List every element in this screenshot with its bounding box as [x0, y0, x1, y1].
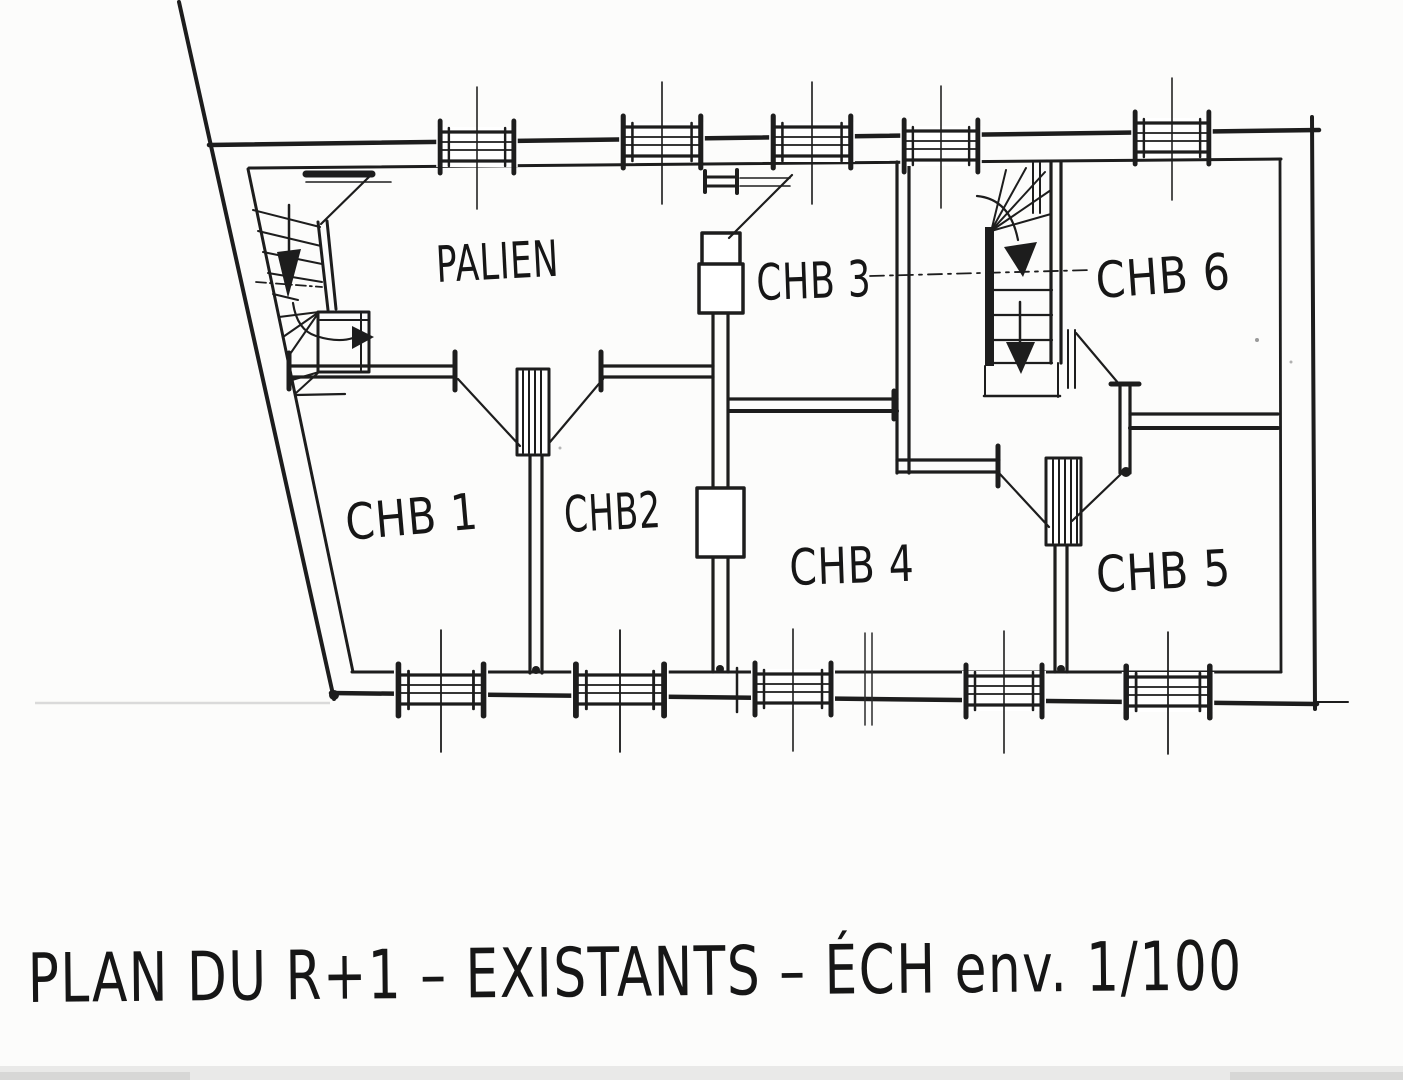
flue-chb4-chb5 [1046, 458, 1081, 545]
floor-plan-drawing: PALIEN CHB 1 CHB2 CHB 3 CHB 4 CHB 5 CHB … [0, 0, 1403, 1080]
window [436, 87, 517, 209]
room-label-chb1: CHB 1 [343, 483, 481, 552]
left-wall-inner [248, 169, 353, 672]
room-label-palier: PALIEN [435, 230, 561, 294]
plan-title: PLAN DU R+1 – EXISTANTS – ÉCH env. 1/100 [27, 926, 1243, 1019]
window [1122, 632, 1214, 754]
window [962, 631, 1046, 753]
flue-central-b [699, 264, 743, 313]
door-chb1 [458, 379, 520, 446]
corner-blob [329, 690, 339, 700]
door-chb6 [1068, 330, 1119, 388]
window [619, 82, 705, 204]
staircase-central [870, 168, 1092, 397]
room-label-chb4: CHB 4 [788, 535, 915, 597]
scan-speck [559, 447, 562, 450]
room-labels: PALIEN CHB 1 CHB2 CHB 3 CHB 4 CHB 5 CHB … [343, 230, 1233, 604]
window [900, 86, 981, 208]
scan-speck [1255, 338, 1259, 342]
flue-central-a [702, 233, 740, 265]
room-label-chb5: CHB 5 [1095, 539, 1233, 604]
right-wall-inner [1280, 159, 1281, 672]
door-chb2 [550, 379, 603, 442]
right-wall-outer [1312, 117, 1315, 709]
room-label-chb6: CHB 6 [1094, 243, 1233, 310]
scanned-floor-plan-page: PALIEN CHB 1 CHB2 CHB 3 CHB 4 CHB 5 CHB … [0, 0, 1403, 1080]
window [571, 630, 668, 752]
stair-down-arrow [1006, 342, 1035, 374]
door-chb3 [705, 170, 792, 238]
scan-edge-smudge [1230, 1072, 1403, 1080]
room-label-chb3: CHB 3 [755, 250, 872, 312]
window [751, 629, 835, 751]
scan-edge-band [0, 1066, 1403, 1080]
stair-down-arrow [277, 249, 301, 298]
scan-edge-smudge [0, 1072, 190, 1080]
top-wall-inner [249, 159, 1281, 168]
scan-speck [1290, 361, 1293, 364]
window [1131, 78, 1212, 200]
flue-chb1-chb2 [517, 369, 549, 455]
left-wall-outer [179, 2, 334, 699]
window [394, 630, 488, 752]
stair-turn-arrow [352, 326, 374, 349]
door-chb4 [999, 473, 1049, 527]
flue-central-c [697, 488, 744, 557]
room-label-chb2: CHB2 [563, 481, 663, 544]
